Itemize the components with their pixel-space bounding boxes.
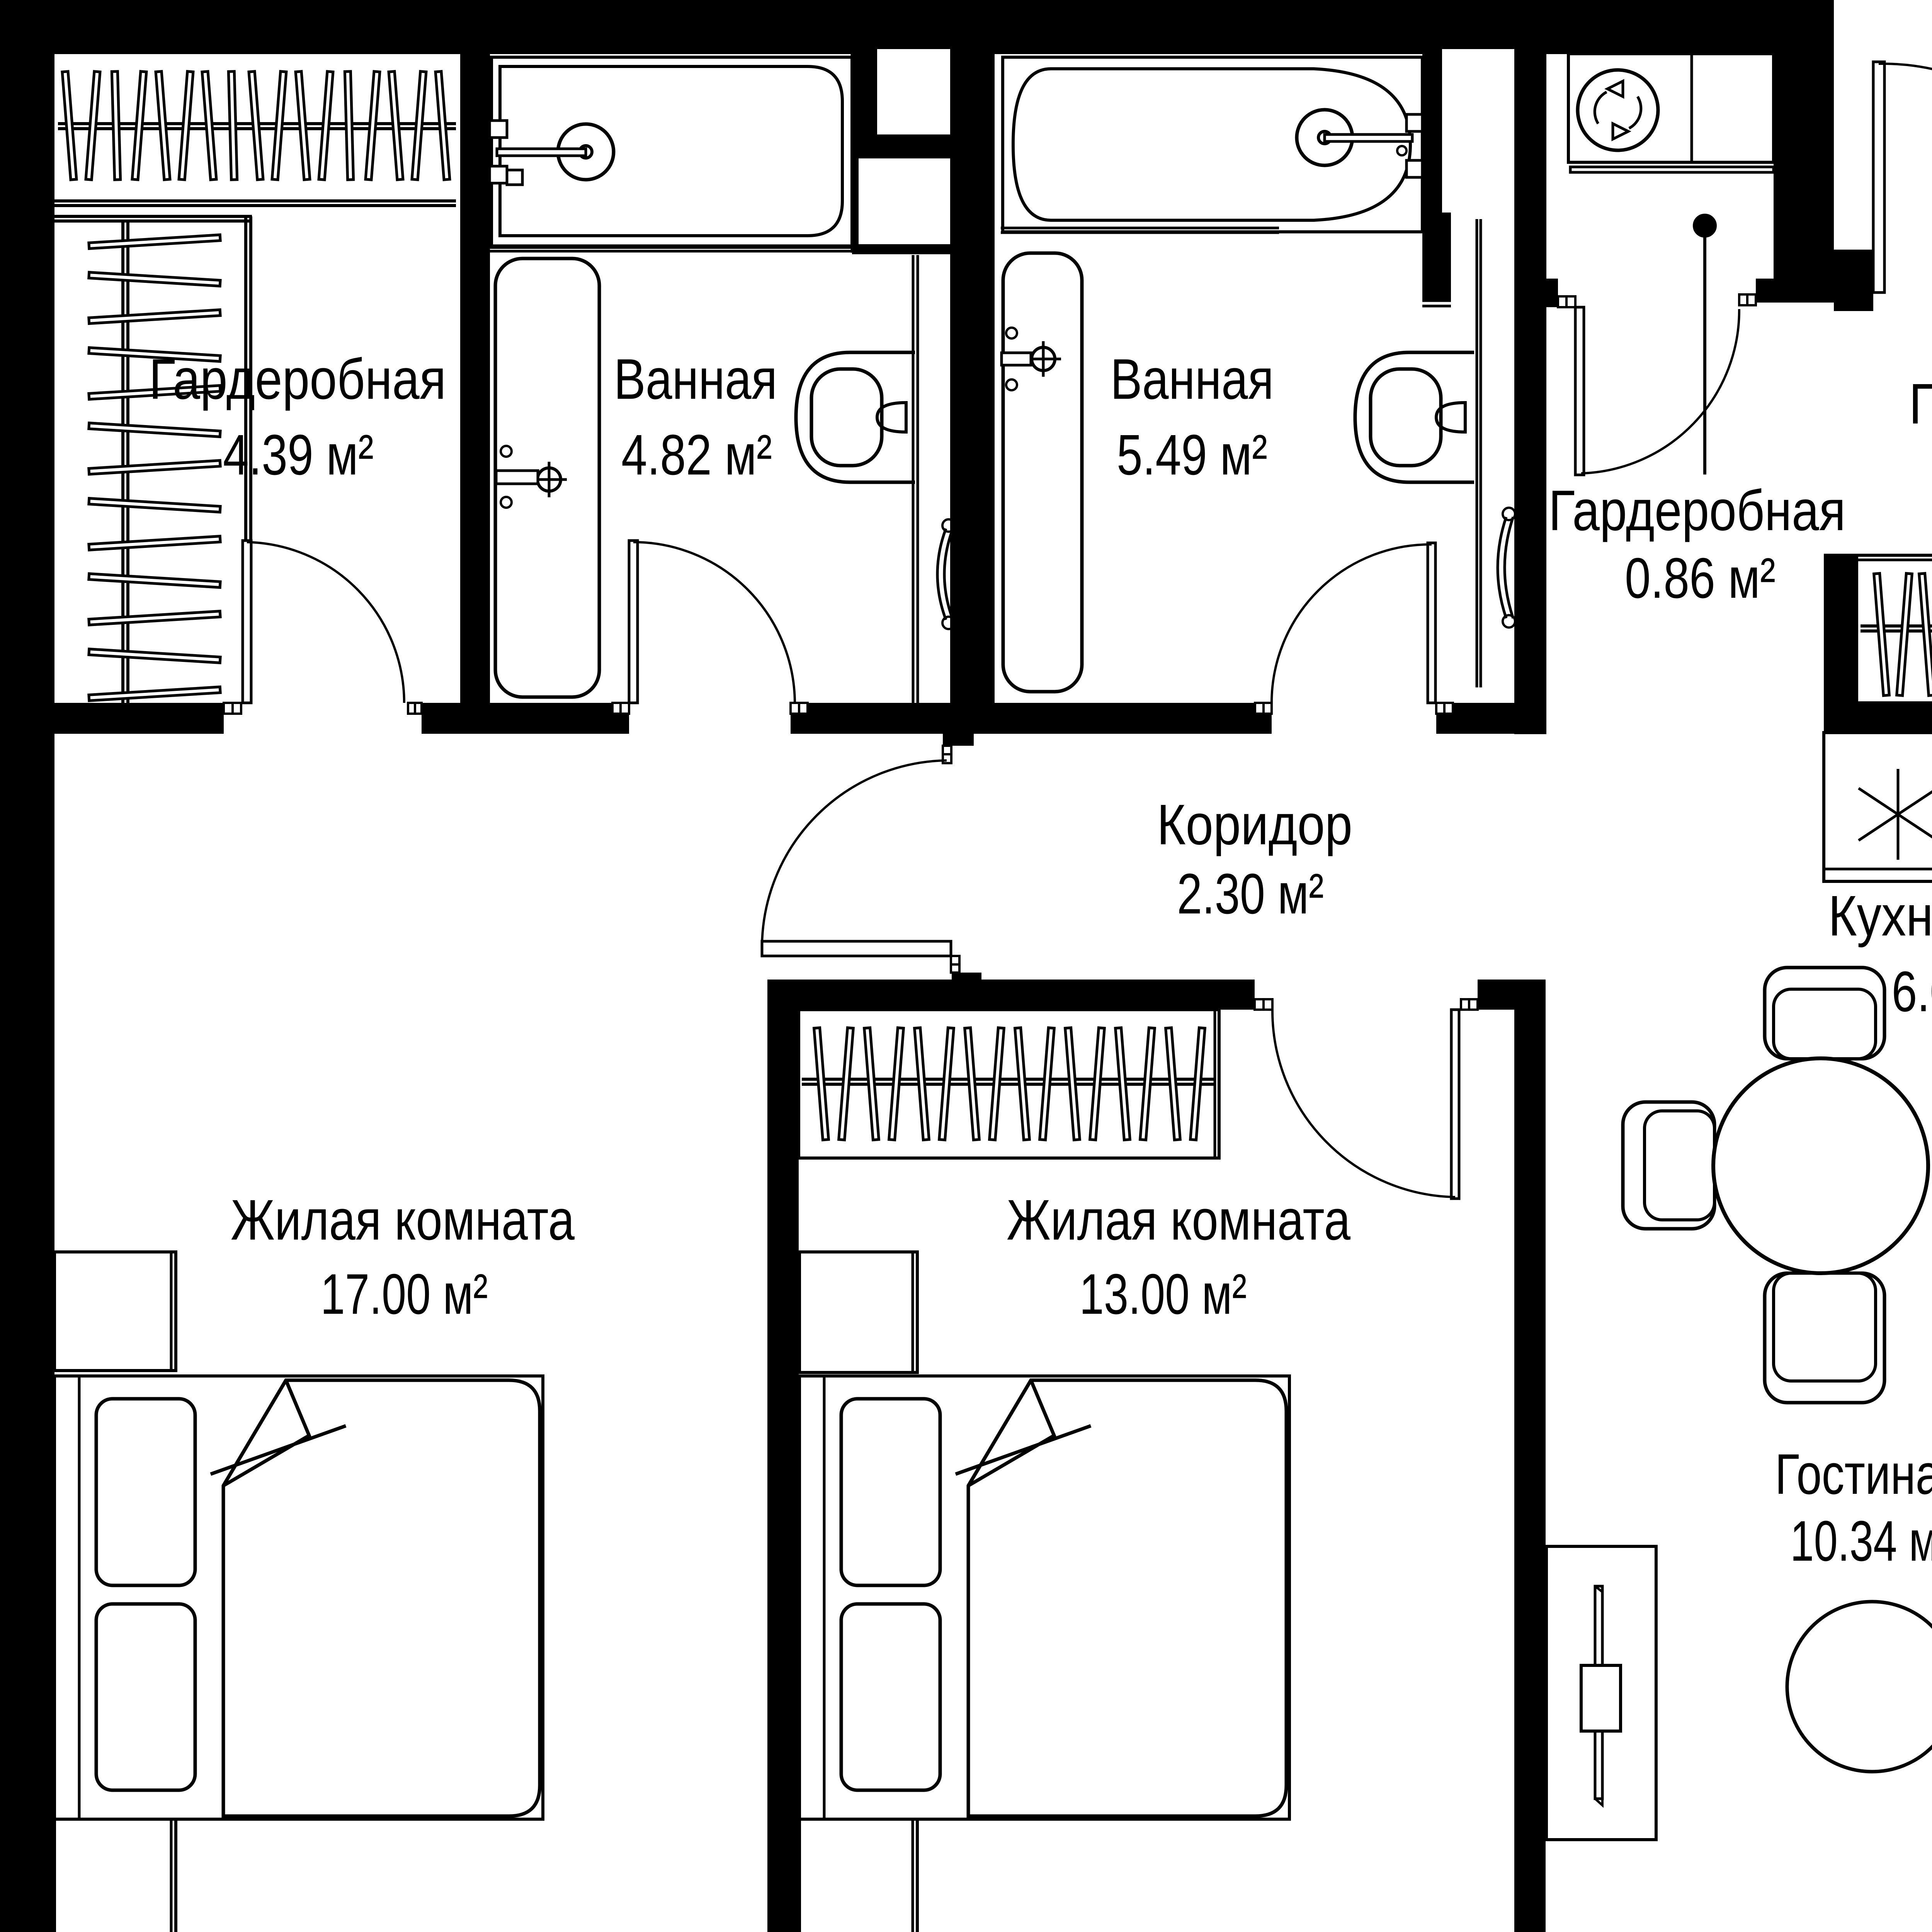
svg-text:Ванная: Ванная bbox=[1111, 347, 1274, 411]
svg-text:Коридор: Коридор bbox=[1157, 793, 1352, 857]
svg-text:4.39 м²: 4.39 м² bbox=[223, 423, 374, 487]
svg-text:Жилая комната: Жилая комната bbox=[1007, 1188, 1351, 1252]
svg-text:17.00 м²: 17.00 м² bbox=[321, 1262, 488, 1326]
svg-text:4.82 м²: 4.82 м² bbox=[621, 423, 772, 487]
svg-text:Жилая комната: Жилая комната bbox=[231, 1188, 575, 1252]
svg-text:Гостиная: Гостиная bbox=[1775, 1442, 1932, 1506]
svg-text:6.02 м²: 6.02 м² bbox=[1892, 960, 1932, 1024]
svg-text:10.34 м²: 10.34 м² bbox=[1790, 1509, 1932, 1573]
svg-text:2.30 м²: 2.30 м² bbox=[1177, 862, 1324, 926]
svg-text:13.00 м²: 13.00 м² bbox=[1080, 1262, 1247, 1326]
svg-text:Ванная: Ванная bbox=[614, 347, 777, 411]
svg-text:Прихожая: Прихожая bbox=[1909, 372, 1932, 436]
svg-text:5.49 м²: 5.49 м² bbox=[1117, 423, 1267, 487]
svg-text:Гардеробная: Гардеробная bbox=[149, 347, 446, 411]
svg-text:0.86 м²: 0.86 м² bbox=[1625, 546, 1776, 610]
svg-text:Гардеробная: Гардеробная bbox=[1549, 479, 1846, 543]
svg-text:Кухня-ниша: Кухня-ниша bbox=[1828, 884, 1932, 948]
